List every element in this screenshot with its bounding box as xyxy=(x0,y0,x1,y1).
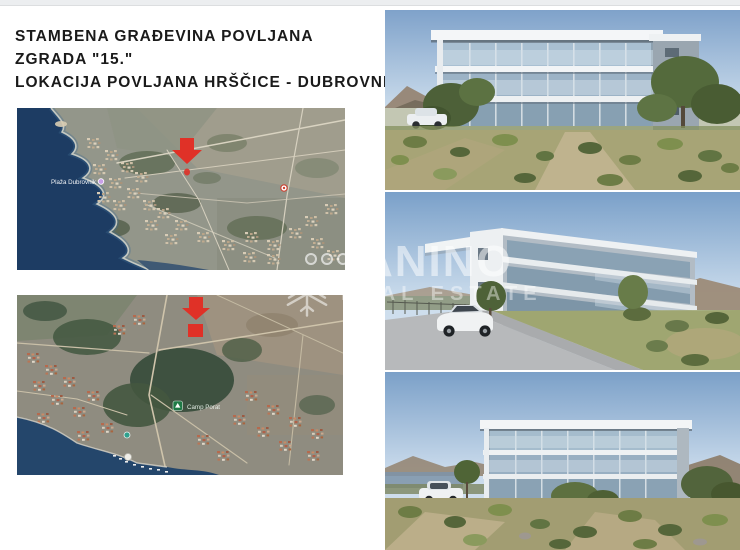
poi-camp-label: Camp Porat xyxy=(187,404,220,411)
building-render-side xyxy=(385,372,740,550)
foreground-scrub xyxy=(385,498,740,550)
top-border-strip xyxy=(0,0,740,6)
poi-beach-label: Plaža Dubrovnik xyxy=(51,179,97,186)
satellite-map-overview-art: Plaža Dubrovnik xyxy=(17,108,345,270)
title-line-3: LOKACIJA POVLJANA HRŠČICE - DUBROVNIK xyxy=(15,71,401,94)
foreground-scrub xyxy=(385,130,740,190)
satellite-map-closeup: Camp Porat xyxy=(17,295,343,475)
building-render-street xyxy=(385,192,740,370)
satellite-map-closeup-art: Camp Porat xyxy=(17,295,343,475)
title-line-2: ZGRADA "15." xyxy=(15,48,401,71)
building-render-front-art xyxy=(385,10,740,190)
plot-square-marker xyxy=(188,324,203,337)
satellite-map-overview: Plaža Dubrovnik xyxy=(17,108,345,270)
title-line-1: STAMBENA GRAĐEVINA POVLJANA xyxy=(15,25,401,48)
title-block: STAMBENA GRAĐEVINA POVLJANA ZGRADA "15."… xyxy=(15,25,401,94)
poi-beach-marker: Plaža Dubrovnik xyxy=(51,179,104,186)
poi-right-marker xyxy=(281,185,287,191)
small-poi-markers xyxy=(124,432,132,461)
listing-flyer: STAMBENA GRAĐEVINA POVLJANA ZGRADA "15."… xyxy=(0,0,740,550)
building-render-street-art xyxy=(385,192,740,370)
building-render-side-art xyxy=(385,372,740,550)
fields xyxy=(94,108,345,270)
sea-harbour xyxy=(17,417,219,475)
building-render-front xyxy=(385,10,740,190)
